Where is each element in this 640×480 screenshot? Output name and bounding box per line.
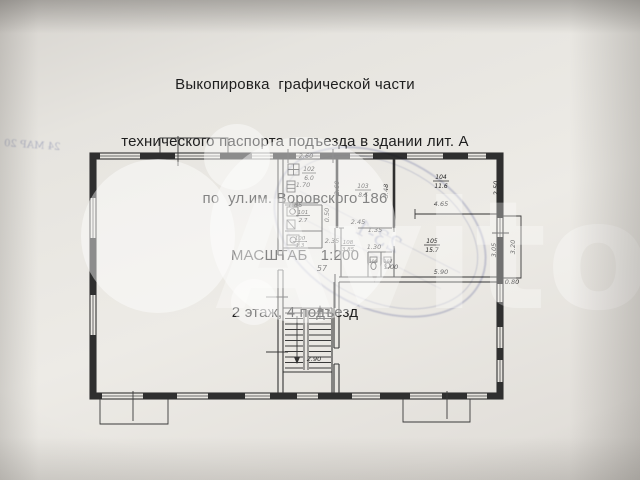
watermark-brand-text: Avito	[215, 170, 640, 344]
dim-290: 2.90	[307, 355, 321, 363]
watermark-circle-medium	[81, 159, 235, 313]
date-stamp: 24 МАР 20	[4, 138, 61, 153]
date-stamp-text: 24 МАР 20	[4, 138, 61, 153]
floor-plan: 1026.0 1012.7 1001.3 1038.5 10411.6 1051…	[0, 0, 640, 480]
document-page: Выкопировка графической части техническо…	[0, 0, 640, 480]
